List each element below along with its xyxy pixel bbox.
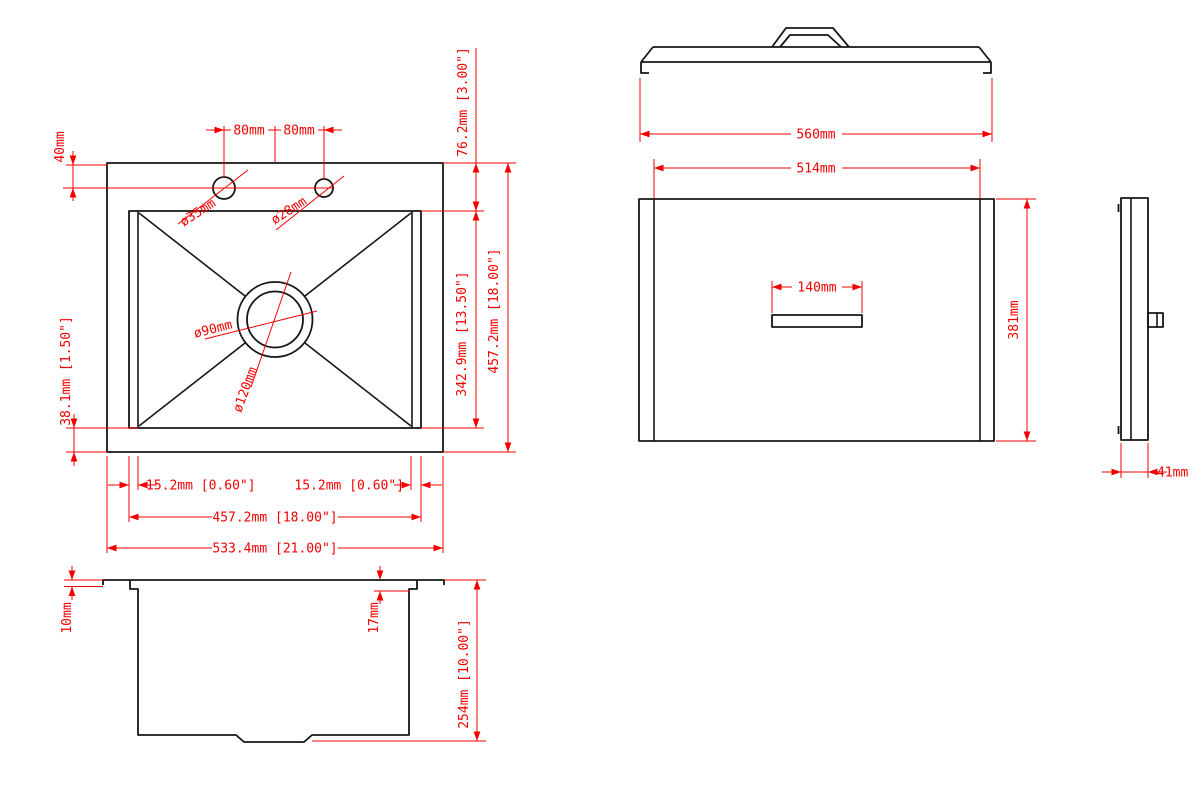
lid-edge-slopes (641, 47, 991, 62)
lid-side-outline (1121, 198, 1148, 440)
dim-hole-left-diameter: ø35mm (178, 196, 219, 230)
lid-plan-view: 560mm 514mm 140mm 381mm (639, 78, 1036, 441)
dim-corner-right: 15.2mm [0.60"] (294, 479, 404, 494)
bowl-diagonal (305, 343, 412, 426)
lid-plan-outline (639, 199, 994, 441)
lid-profile-view (641, 28, 991, 73)
dim-lid-handle-width: 140mm (797, 281, 836, 296)
dim-drain-outer-diameter: ø120mm (231, 365, 261, 414)
dim-drain-inner-diameter: ø90mm (192, 318, 234, 342)
dim-bowl-width: 457.2mm [18.00"] (212, 511, 337, 526)
lid-side-view: 41mm (1102, 198, 1188, 481)
sink-technical-drawing: 80mm 80mm 40mm ø35mm ø28mm ø90mm ø120mm … (0, 0, 1200, 794)
bowl-diagonal (305, 213, 412, 296)
lid-side-knob (1148, 313, 1163, 327)
dim-bowl-edge-margin: 38.1mm [1.50"] (59, 316, 74, 426)
dim-bowl-depth: 254mm [10.00"] (457, 619, 472, 729)
dim-lid-thickness: 41mm (1157, 466, 1188, 481)
bowl-diagonal (139, 343, 246, 426)
dim-lid-overall-width: 560mm (796, 128, 835, 143)
lid-handle-plan (772, 315, 862, 327)
dim-bowl-length: 342.9mm [13.50"] (455, 271, 470, 396)
dim-overall-length: 457.2mm [18.00"] (487, 248, 502, 373)
lid-edge-hooks (641, 62, 991, 73)
dim-hole-spacing-left: 80mm (233, 124, 264, 139)
dim-rim-height: 10mm (60, 602, 75, 633)
lid-handle-inner (780, 35, 841, 47)
section-rim-line (103, 580, 444, 585)
sink-rim-outline (107, 163, 443, 452)
dim-rim-to-bowl: 76.2mm [3.00"] (456, 47, 471, 157)
drawing-canvas: 80mm 80mm 40mm ø35mm ø28mm ø90mm ø120mm … (0, 0, 1200, 794)
dim-lid-depth: 381mm (1007, 300, 1022, 339)
dim-overall-width: 533.4mm [21.00"] (212, 542, 337, 557)
dim-hole-offset: 40mm (53, 131, 68, 162)
sink-top-view: 80mm 80mm 40mm ø35mm ø28mm ø90mm ø120mm … (53, 47, 516, 556)
dim-lip-height: 17mm (367, 602, 382, 633)
sink-section-view: 10mm 17mm 254mm [10.00"] (60, 566, 486, 742)
dim-corner-left: 15.2mm [0.60"] (146, 479, 256, 494)
dim-hole-spacing-right: 80mm (283, 124, 314, 139)
dim-lid-top-width: 514mm (796, 162, 835, 177)
